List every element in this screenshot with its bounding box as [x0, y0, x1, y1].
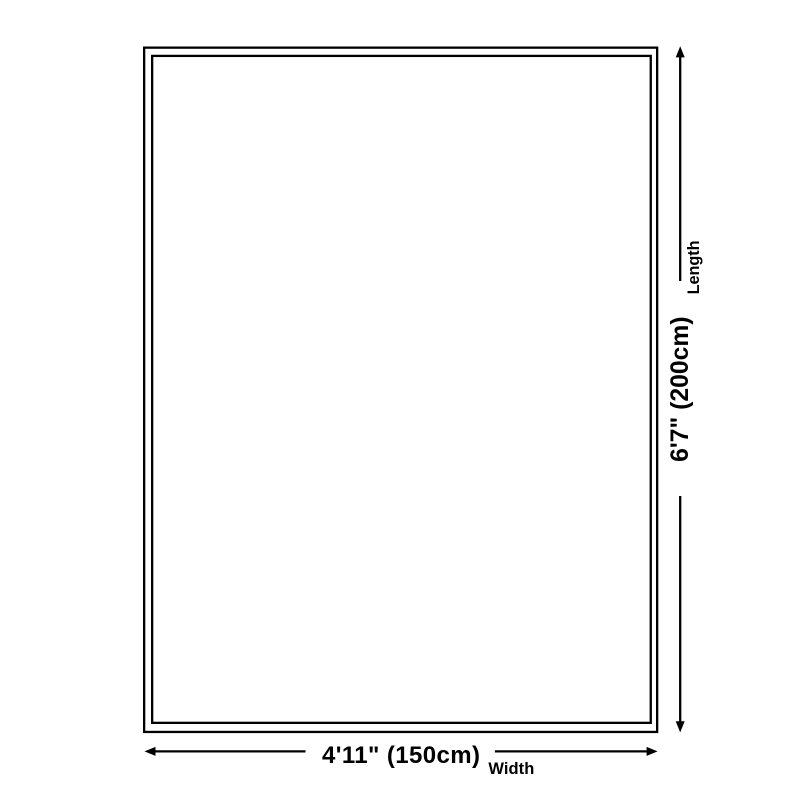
svg-text:4'11" (150cm): 4'11" (150cm): [322, 742, 480, 769]
svg-text:Length: Length: [685, 240, 703, 294]
svg-text:Width: Width: [488, 760, 534, 778]
svg-text:6'7" (200cm): 6'7" (200cm): [667, 316, 694, 462]
